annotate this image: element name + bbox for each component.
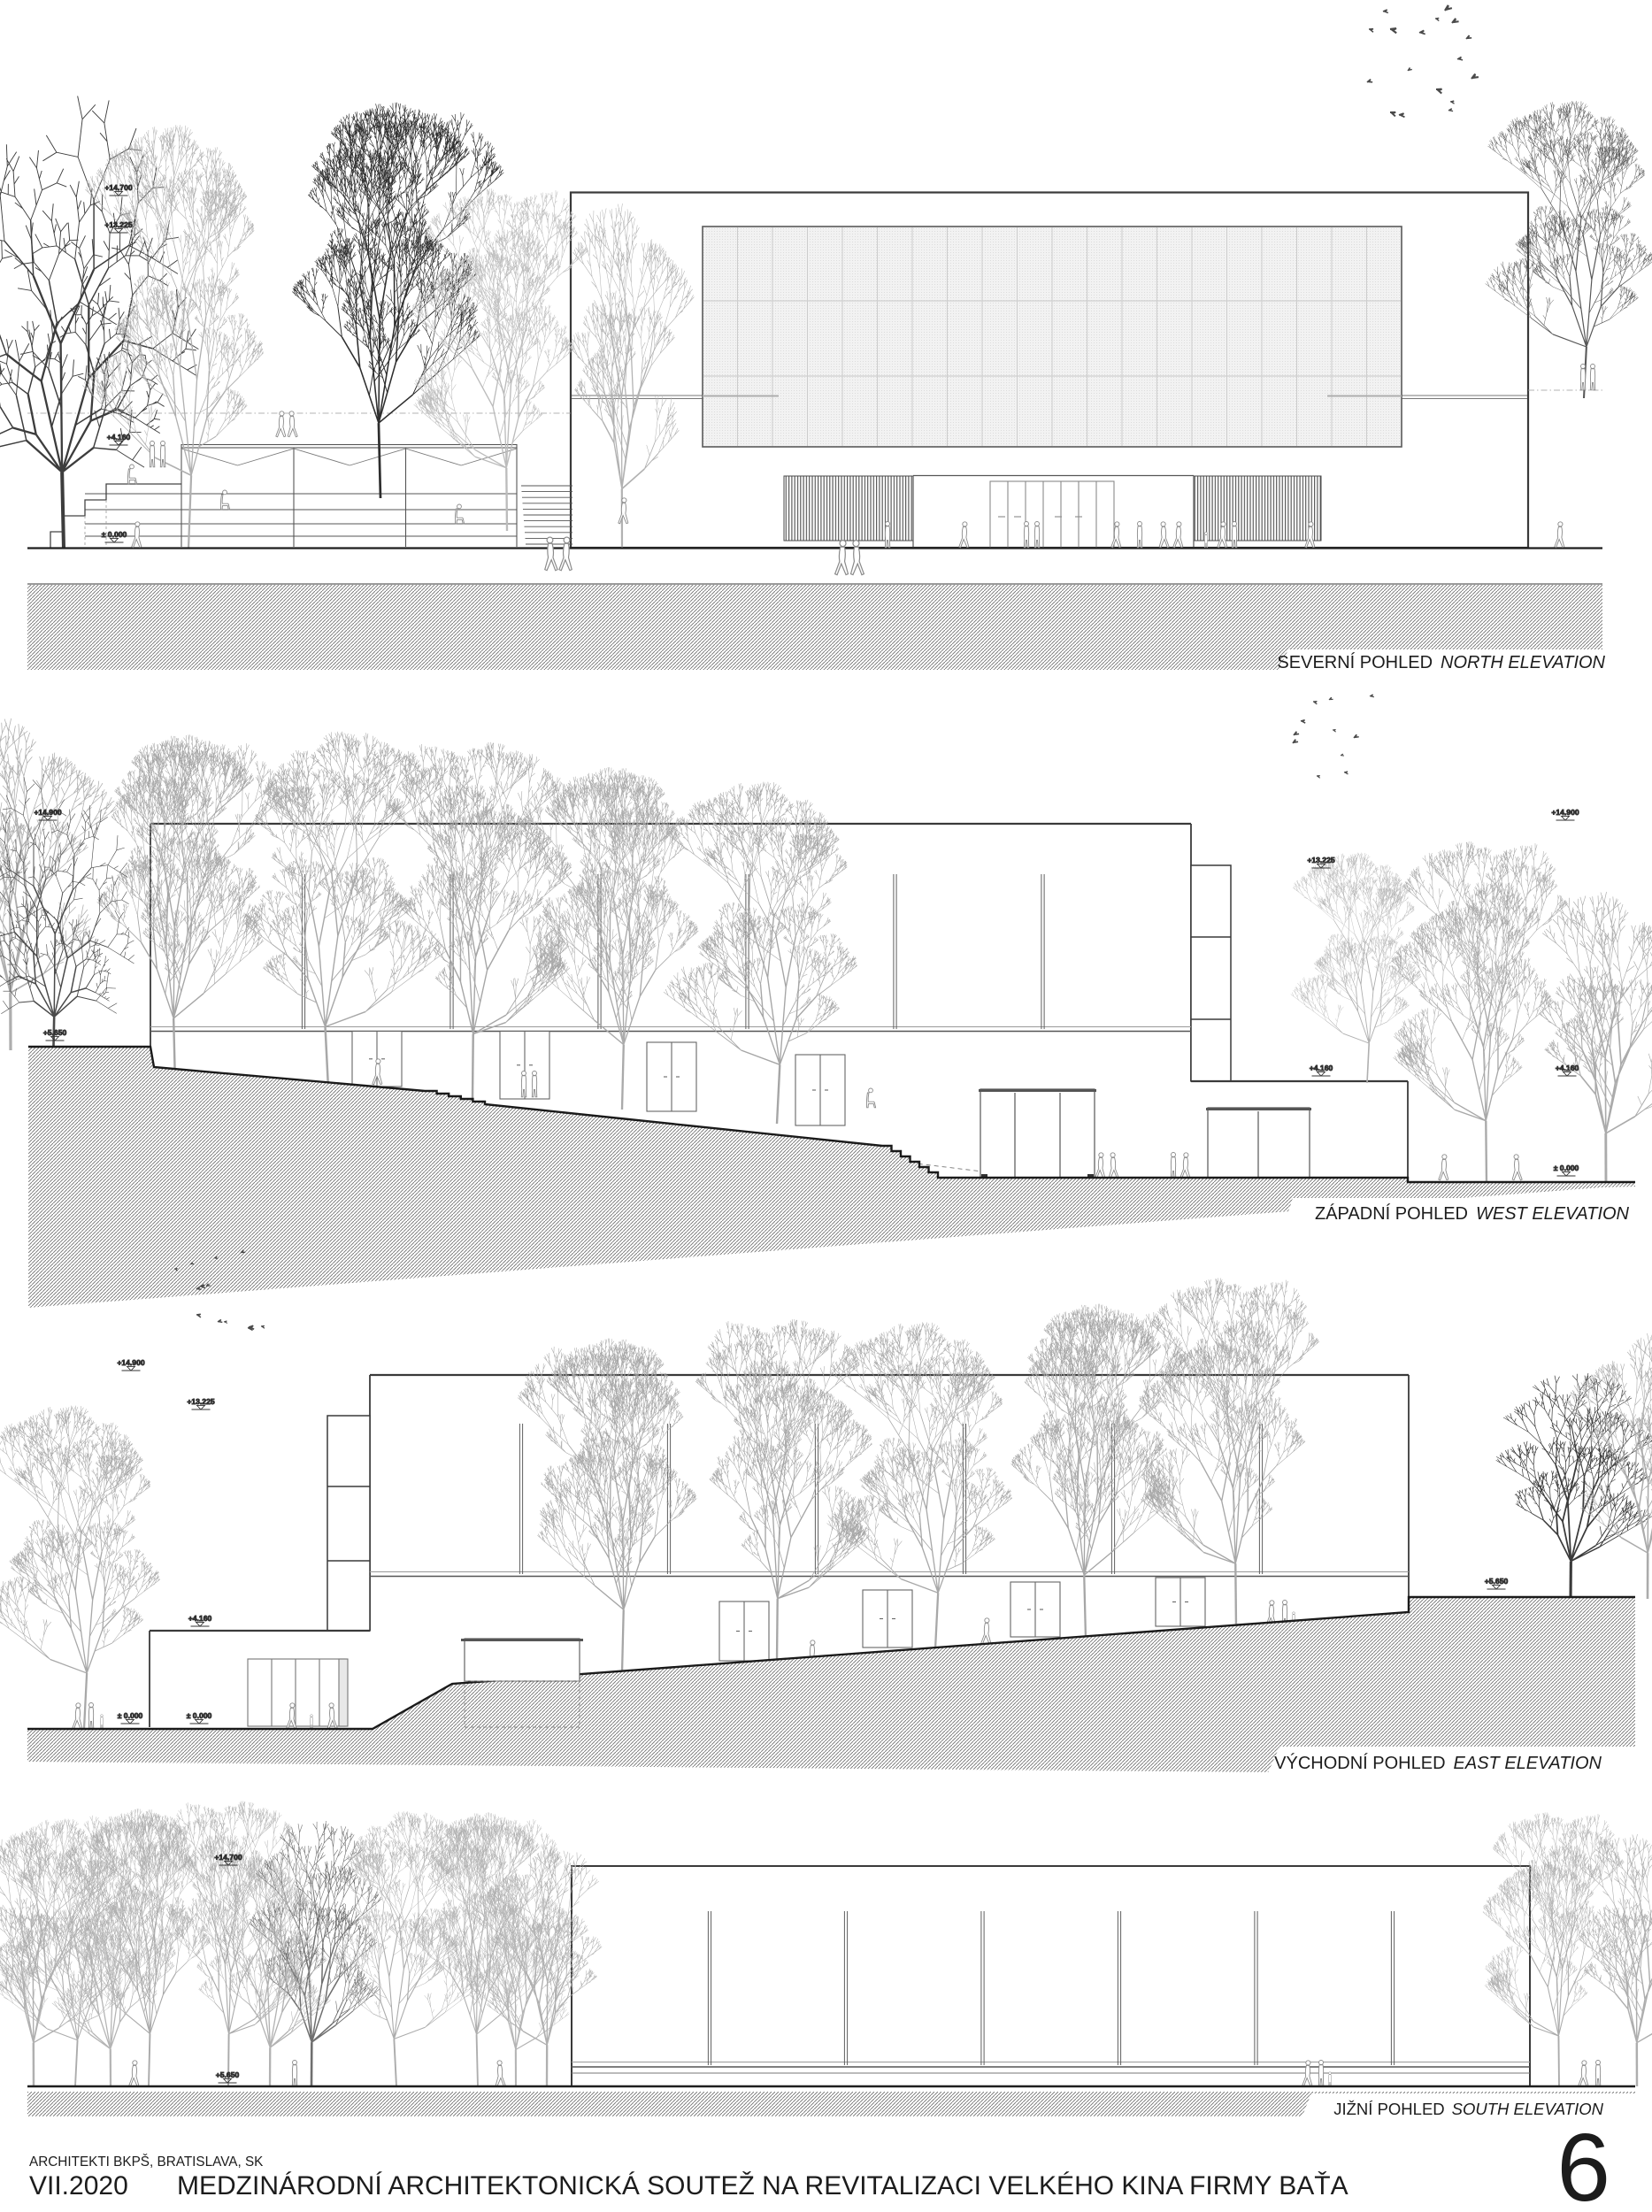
svg-text:+4.160: +4.160 <box>188 1614 212 1623</box>
svg-text:+5.650: +5.650 <box>216 2070 240 2079</box>
svg-text:± 0.000: ± 0.000 <box>187 1711 212 1720</box>
svg-text:MEDZINÁRODNÍ ARCHITEKTONICKÁ S: MEDZINÁRODNÍ ARCHITEKTONICKÁ SOUTEŽ NA R… <box>177 2171 1348 2200</box>
svg-text:SEVERNÍ POHLEDNORTH ELEVATION: SEVERNÍ POHLEDNORTH ELEVATION <box>1277 652 1605 672</box>
svg-text:± 0.000: ± 0.000 <box>118 1711 143 1720</box>
svg-text:6: 6 <box>1556 2114 1610 2212</box>
svg-text:+4.160: +4.160 <box>1556 1064 1579 1072</box>
svg-text:+5.650: +5.650 <box>1485 1577 1509 1586</box>
svg-text:+5.650: +5.650 <box>43 1028 67 1037</box>
svg-text:VÝCHODNÍ POHLEDEAST ELEVATION: VÝCHODNÍ POHLEDEAST ELEVATION <box>1274 1753 1602 1773</box>
svg-text:+4.160: +4.160 <box>107 433 131 442</box>
svg-text:± 0.000: ± 0.000 <box>1554 1164 1579 1172</box>
svg-text:+14.900: +14.900 <box>117 1358 145 1367</box>
svg-text:ARCHITEKTI BKPŠ, BRATISLAVA, S: ARCHITEKTI BKPŠ, BRATISLAVA, SK <box>29 2154 264 2170</box>
svg-text:+14.700: +14.700 <box>214 1853 242 1862</box>
svg-text:+14.900: +14.900 <box>1551 808 1579 817</box>
svg-text:+14.900: +14.900 <box>34 808 62 817</box>
svg-text:+13.225: +13.225 <box>187 1397 215 1406</box>
svg-text:+13.225: +13.225 <box>1307 856 1335 864</box>
svg-text:+4.160: +4.160 <box>1310 1064 1333 1072</box>
svg-text:+13.225: +13.225 <box>104 220 133 229</box>
svg-text:VII.2020: VII.2020 <box>29 2171 128 2200</box>
svg-text:+14.700: +14.700 <box>104 183 133 192</box>
svg-text:± 0.000: ± 0.000 <box>102 530 127 539</box>
